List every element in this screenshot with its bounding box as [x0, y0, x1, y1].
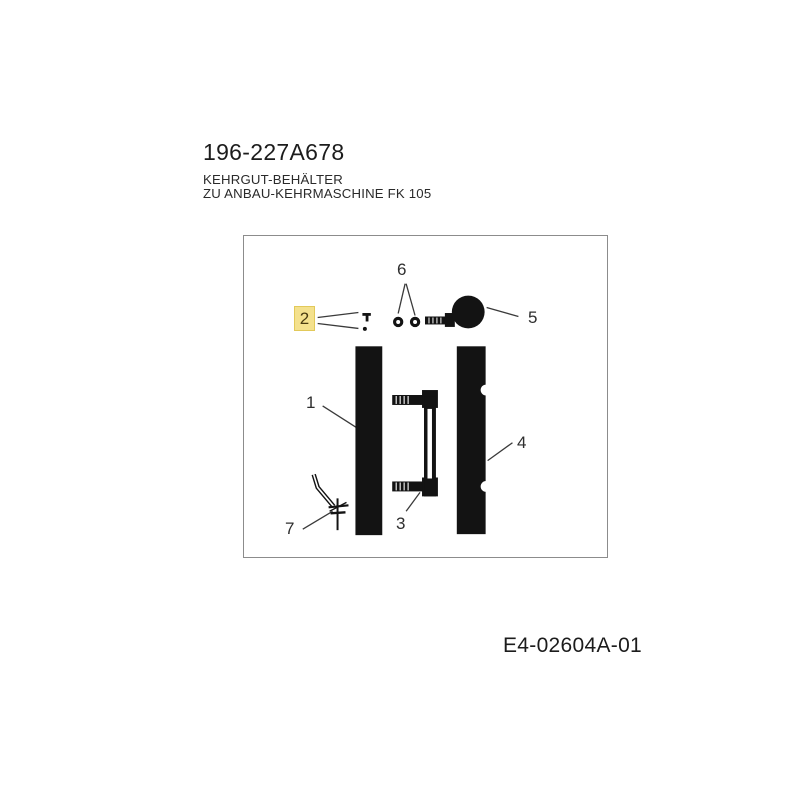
pin-and-nut-shape	[362, 313, 370, 331]
lever-rod-shape	[314, 475, 349, 531]
bracket-thread-ticks	[396, 396, 408, 490]
exploded-parts-diagram: 1 2 3 4 5 6 7	[243, 235, 608, 558]
side-plate-notch-top	[481, 385, 492, 396]
callout-6[interactable]: 6	[397, 259, 406, 281]
parts-diagram-drawing	[244, 236, 607, 557]
description-line-2: ZU ANBAU-KEHRMASCHINE FK 105	[203, 187, 431, 201]
knob-with-bolt-shape	[425, 296, 485, 329]
leader-line-6a	[398, 284, 405, 314]
leader-line-5	[487, 308, 519, 317]
pin-head	[362, 313, 370, 316]
side-plate-right-shape	[457, 346, 492, 534]
bracket-bottom-bolt	[392, 481, 427, 491]
washer-right	[411, 318, 418, 325]
side-plate-notch-bottom	[481, 481, 492, 492]
leader-line-2a	[318, 313, 359, 318]
callout-5[interactable]: 5	[528, 307, 537, 329]
leader-line-7	[303, 511, 333, 529]
knob-head	[452, 296, 485, 329]
pin-stem	[366, 316, 369, 322]
leader-line-1	[323, 406, 359, 429]
nut-dot	[363, 327, 367, 331]
bracket-top-bolt	[392, 395, 427, 405]
callout-7[interactable]: 7	[285, 518, 294, 540]
parts-catalog-page: 196-227A678 KEHRGUT-BEHÄLTER ZU ANBAU-KE…	[0, 0, 800, 800]
cotter-pin-washer	[331, 512, 346, 513]
leader-line-6b	[406, 284, 415, 316]
bracket-slot	[427, 409, 431, 479]
callout-3[interactable]: 3	[396, 513, 405, 535]
leader-line-2b	[318, 323, 359, 328]
leader-line-3	[406, 492, 420, 511]
handle-bracket-shape	[392, 390, 438, 496]
side-plate-left-shape	[355, 346, 382, 535]
leader-line-4	[488, 443, 513, 461]
washer-left	[395, 318, 402, 325]
part-number-title: 196-227A678	[203, 140, 431, 164]
part-description: KEHRGUT-BEHÄLTER ZU ANBAU-KEHRMASCHINE F…	[203, 173, 431, 201]
callout-2-highlighted[interactable]: 2	[294, 306, 315, 331]
header: 196-227A678 KEHRGUT-BEHÄLTER ZU ANBAU-KE…	[203, 140, 431, 201]
description-line-1: KEHRGUT-BEHÄLTER	[203, 173, 431, 187]
callout-4[interactable]: 4	[517, 432, 526, 454]
washers-shape	[395, 318, 419, 325]
drawing-number: E4-02604A-01	[503, 634, 642, 658]
side-plate-right-body	[457, 346, 486, 534]
callout-1[interactable]: 1	[306, 392, 315, 414]
